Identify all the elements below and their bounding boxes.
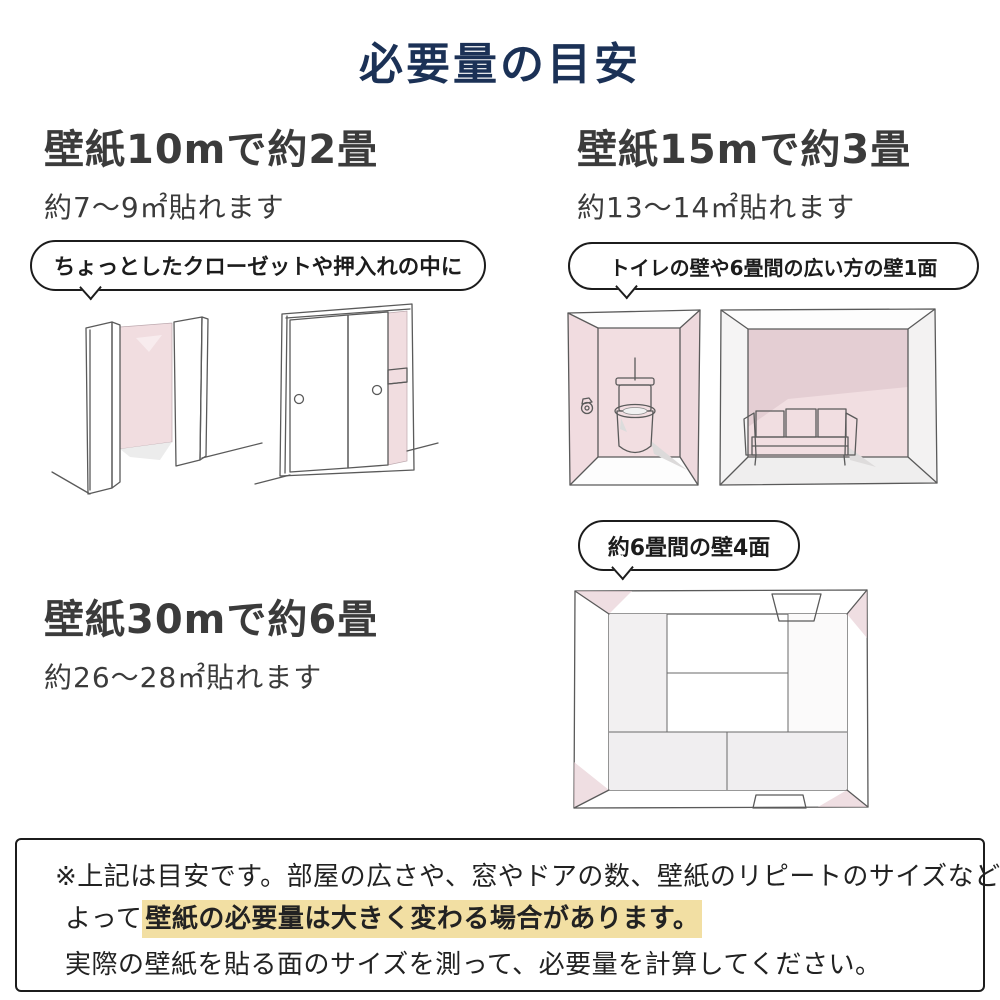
- sofa-room-illustration: [714, 297, 942, 499]
- tatami-room-sketch: [570, 584, 874, 814]
- section-30m: 壁紙30mで約6畳 約26〜28㎡貼れます: [44, 598, 378, 696]
- tatami-mat: [727, 732, 847, 790]
- section-15m-heading: 壁紙15mで約3畳: [577, 128, 911, 172]
- tatami-mat: [609, 614, 667, 732]
- section-10m-heading: 壁紙10mで約2畳: [44, 128, 378, 172]
- closet-illustrations: [50, 296, 470, 568]
- note-line1: ※上記は目安です。部屋の広さや、窓やドアの数、壁紙のリピートのサイズなどに: [55, 856, 1000, 893]
- section-10m: 壁紙10mで約2畳 約7〜9㎡貼れます: [44, 128, 378, 226]
- section-30m-subheading: 約26〜28㎡貼れます: [44, 656, 378, 696]
- section-10m-subheading: 約7〜9㎡貼れます: [44, 186, 378, 226]
- toilet-room-illustration: [556, 296, 711, 505]
- bubble-30m-label: 約6畳間の壁4面: [608, 530, 771, 562]
- tatami-mat: [609, 732, 727, 790]
- toilet-room-sketch: [556, 296, 711, 501]
- bubble-10m: ちょっとしたクローゼットや押入れの中に: [30, 240, 486, 291]
- note-box: ※上記は目安です。部屋の広さや、窓やドアの数、壁紙のリピートのサイズなどに よっ…: [15, 838, 985, 992]
- bubble-10m-label: ちょっとしたクローゼットや押入れの中に: [54, 250, 463, 281]
- page-title: 必要量の目安: [0, 28, 1000, 92]
- sliding-door-closet-sketch: [255, 304, 438, 484]
- section-30m-heading: 壁紙30mで約6畳: [44, 598, 378, 642]
- closet-open-and-sliding-sketch: [50, 296, 470, 564]
- doorway: [753, 795, 806, 808]
- note-line3: 実際の壁紙を貼る面のサイズを測って、必要量を計算してください。: [65, 944, 882, 981]
- tatami-room-illustration: [570, 584, 874, 818]
- bubble-30m: 約6畳間の壁4面: [578, 520, 800, 571]
- wallpaper-amount-guide: 必要量の目安 壁紙10mで約2畳 約7〜9㎡貼れます ちょっとしたクローゼットや…: [0, 0, 1000, 1000]
- section-15m: 壁紙15mで約3畳 約13〜14㎡貼れます: [577, 128, 911, 226]
- note-line2-prefix: よって: [65, 904, 142, 934]
- open-closet-sketch: [52, 317, 262, 494]
- note-line2: よって壁紙の必要量は大きく変わる場合があります。: [65, 898, 702, 935]
- bubble-15m-label: トイレの壁や6畳間の広い方の壁1面: [610, 252, 938, 281]
- tatami-mat: [788, 614, 847, 732]
- section-15m-subheading: 約13〜14㎡貼れます: [577, 186, 911, 226]
- bubble-15m: トイレの壁や6畳間の広い方の壁1面: [568, 242, 979, 290]
- note-line2-highlight: 壁紙の必要量は大きく変わる場合があります。: [142, 900, 702, 938]
- sofa-room-sketch: [714, 297, 942, 495]
